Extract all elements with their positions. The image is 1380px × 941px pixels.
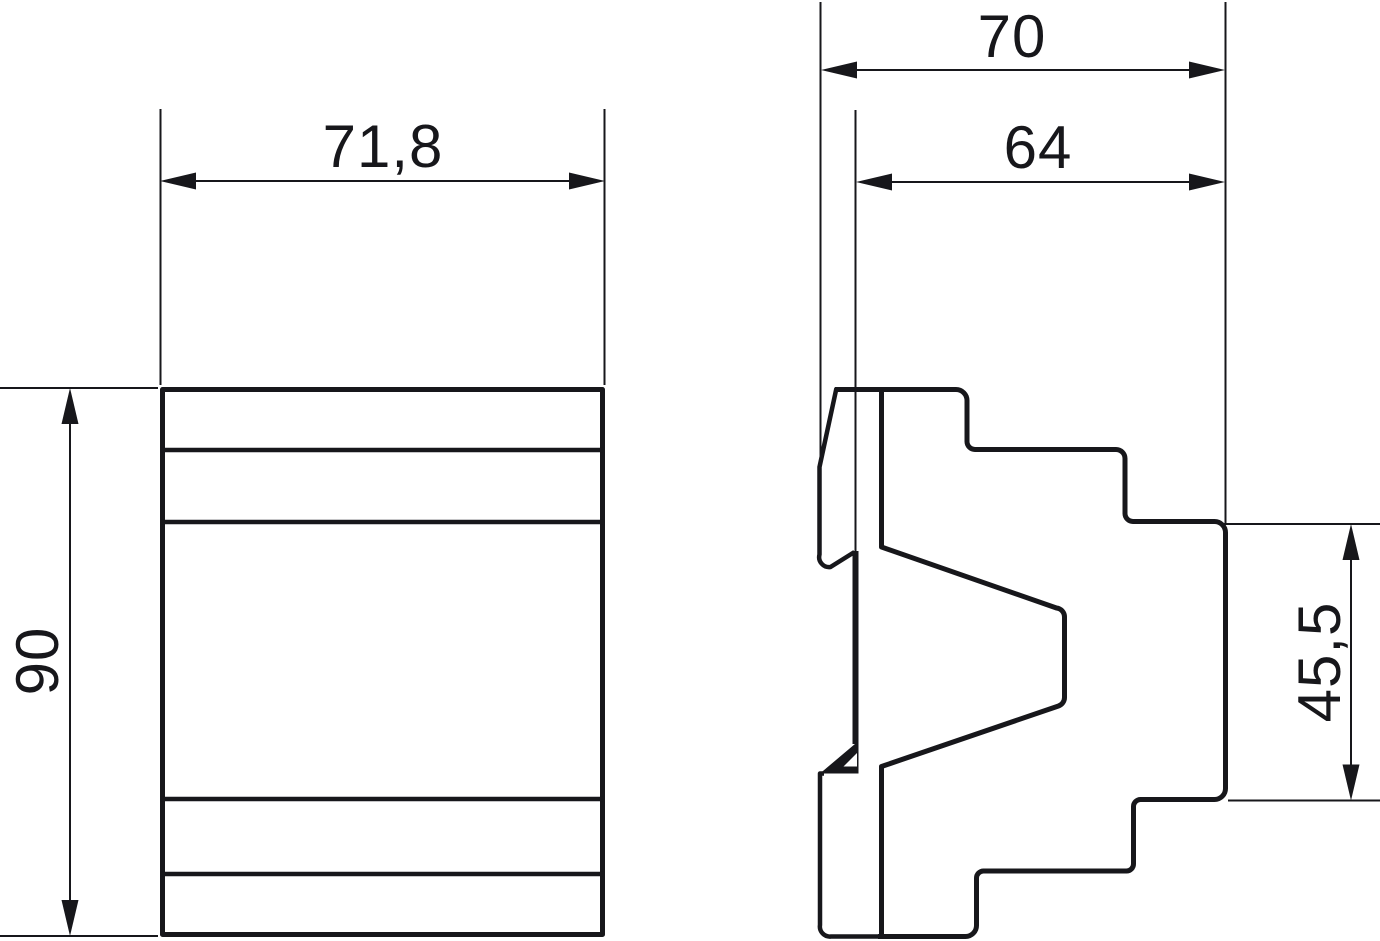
dimension-label-body-depth: 64 xyxy=(1004,114,1073,181)
dimension-side-front-height: 45,5 xyxy=(1220,524,1380,801)
dimension-drawing: 71,8 90 xyxy=(0,0,1380,941)
side-view-din-rail-notch xyxy=(882,388,1065,937)
arrowhead-bottom xyxy=(62,900,79,936)
arrowhead-right xyxy=(1189,62,1225,79)
front-view xyxy=(161,390,603,935)
side-view-clip-upper-lug xyxy=(819,388,854,567)
arrowhead-bottom xyxy=(1343,765,1360,801)
dimension-label-front-height: 45,5 xyxy=(1286,602,1353,723)
dimension-side-body-depth: 64 xyxy=(856,114,1225,191)
arrowhead-right xyxy=(569,173,605,190)
front-view-outline xyxy=(163,390,603,935)
side-view-body-outline xyxy=(835,390,1226,937)
dimension-label-width: 71,8 xyxy=(323,113,444,180)
arrowhead-left xyxy=(160,173,196,190)
arrowhead-left xyxy=(821,62,857,79)
arrowhead-top xyxy=(1343,524,1360,560)
dimension-front-height: 90 xyxy=(0,388,158,936)
arrowhead-right xyxy=(1189,174,1225,191)
arrowhead-top xyxy=(62,388,79,424)
side-view-clip-tooth xyxy=(820,741,859,774)
dimension-front-width: 71,8 xyxy=(160,109,605,385)
dimension-label-overall-depth: 70 xyxy=(978,3,1047,70)
arrowhead-left xyxy=(856,174,892,191)
dimension-label-height: 90 xyxy=(4,627,71,696)
side-view-clip-foot xyxy=(820,774,878,937)
technical-drawing-canvas: 71,8 90 xyxy=(0,0,1380,941)
side-view xyxy=(819,110,1225,937)
